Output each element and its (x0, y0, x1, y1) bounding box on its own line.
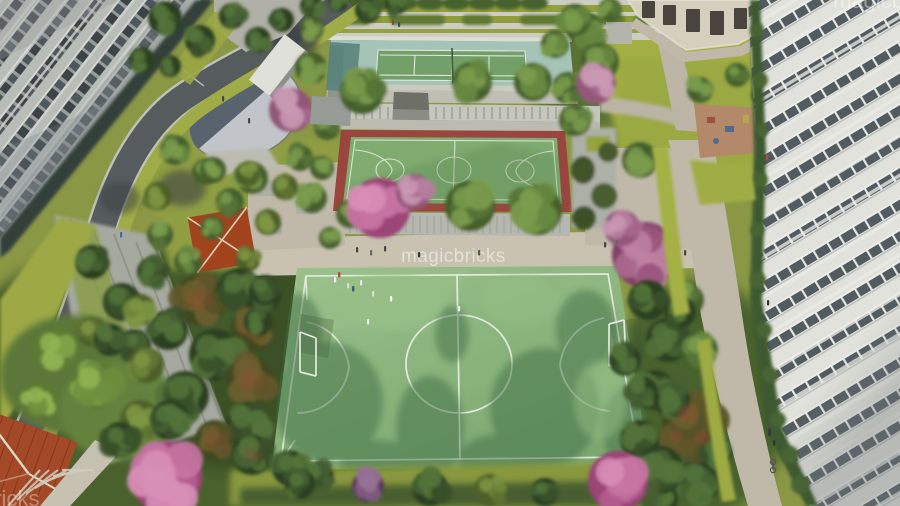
svg-text:magicbricks: magicbricks (401, 246, 506, 267)
svg-text:bricks: bricks (0, 486, 39, 506)
svg-text:magicbr: magicbr (833, 0, 900, 13)
